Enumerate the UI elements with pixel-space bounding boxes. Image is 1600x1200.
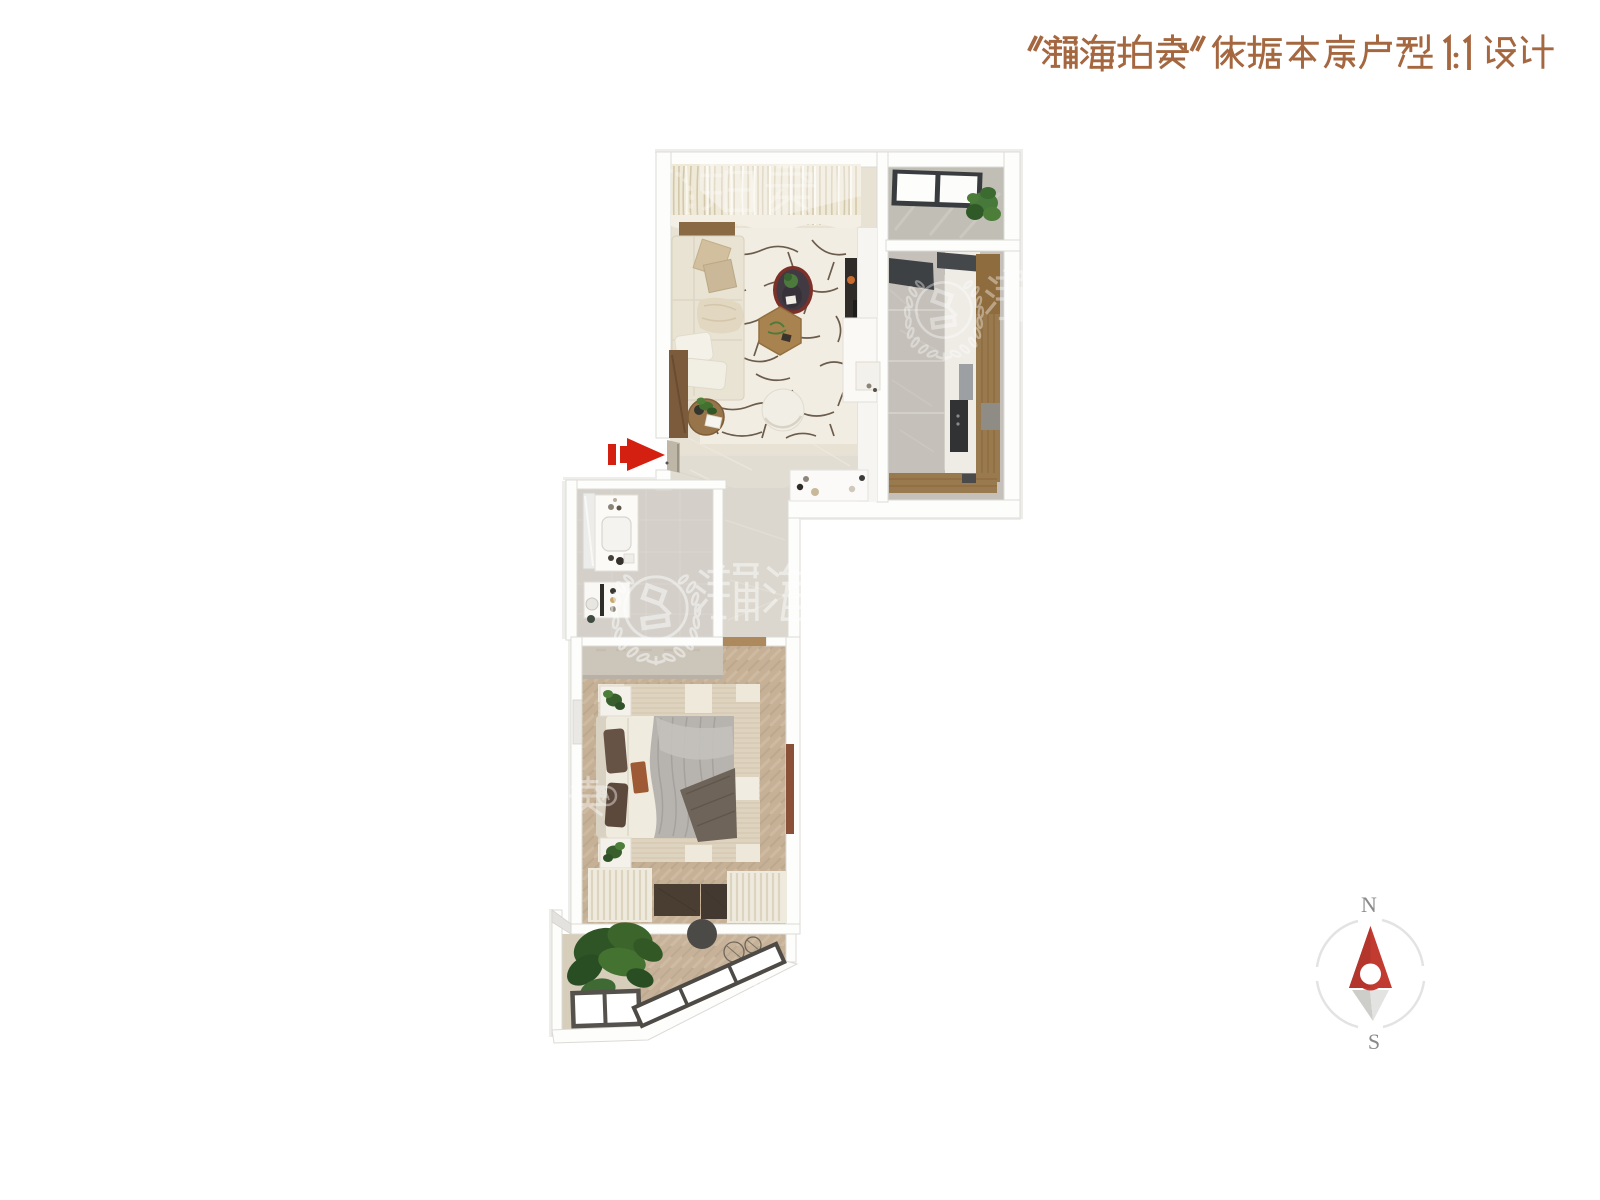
svg-text:N: N	[1361, 892, 1377, 917]
svg-text:S: S	[1368, 1029, 1380, 1054]
